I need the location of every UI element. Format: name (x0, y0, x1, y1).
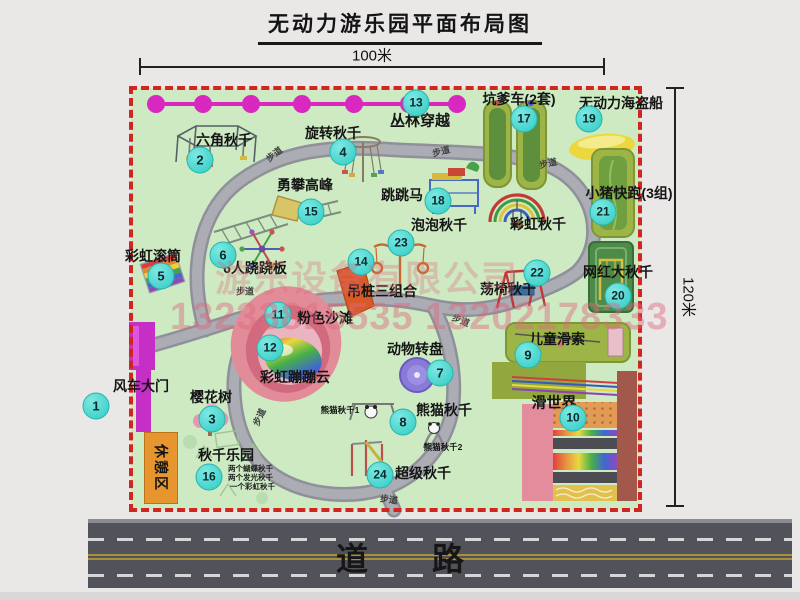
facility-1-label: 风车大门 (113, 376, 169, 396)
facility-7-label: 动物转盘 (387, 339, 443, 359)
right-dimension-tick-bottom (666, 505, 684, 507)
facility-12-label: 彩虹蹦蹦云 (260, 367, 330, 387)
facility-16-label: 秋千乐园 (198, 445, 254, 465)
facility-4-label: 旋转秋千 (305, 123, 361, 143)
facility-12-marker: 12 (257, 335, 284, 362)
facility-20-label: 网红大秋千 (583, 262, 653, 282)
facility-22-marker: 22 (524, 260, 551, 287)
park-layout-screenshot: 无动力游乐园平面布局图 100米 120米 游乐设备有限公司 132338155… (0, 0, 800, 600)
facility-8-marker: 8 (390, 409, 417, 436)
facility-24-label: 超级秋千 (395, 463, 451, 483)
facility-11-label: 粉色沙滩 (297, 308, 353, 328)
facility-14-label: 吊桩三组合 (347, 281, 417, 301)
facility-23-label: 泡泡秋千 (411, 215, 467, 235)
facility-15-label: 勇攀高峰 (277, 175, 333, 195)
facility-9-marker: 9 (515, 342, 542, 369)
top-dimension-line (140, 66, 604, 68)
facility-4-marker: 4 (330, 139, 357, 166)
bottom-margin (0, 592, 800, 600)
rest-area-box: 休憩区 (144, 432, 178, 504)
facility-5-marker: 5 (148, 263, 175, 290)
facility-19-marker: 19 (576, 106, 603, 133)
panda-swing-1-label: 熊猫秋千1 (321, 404, 360, 416)
facility-3-label: 樱花树 (190, 387, 232, 407)
facility-7-marker: 7 (427, 360, 454, 387)
facility-17-marker: 17 (511, 106, 538, 133)
facility-1-marker: 1 (83, 393, 110, 420)
facility-8-label: 熊猫秋千 (416, 400, 472, 420)
facility-16-marker: 16 (196, 464, 223, 491)
road: 道 路 (88, 519, 792, 588)
rainbow-swing-label: 彩虹秋千 (510, 214, 566, 234)
swing-note-3: 一个彩虹秋千 (230, 481, 275, 492)
page-title: 无动力游乐园平面布局图 (258, 8, 542, 45)
road-label-char-2: 路 (432, 534, 464, 580)
facility-5-label: 彩虹滚筒 (125, 246, 181, 266)
height-dimension-label: 120米 (679, 277, 700, 317)
facility-13-marker: 13 (403, 90, 430, 117)
facility-20-marker: 20 (605, 283, 632, 310)
facility-10-marker: 10 (560, 405, 587, 432)
footpath-label-7: 步道 (379, 491, 399, 506)
facility-24-marker: 24 (367, 462, 394, 489)
facility-6-marker: 6 (210, 242, 237, 269)
facility-15-marker: 15 (298, 199, 325, 226)
top-dimension-tick-right (603, 58, 605, 75)
width-dimension-label: 100米 (352, 45, 392, 66)
right-dimension-line (674, 88, 676, 507)
top-dimension-tick-left (139, 58, 141, 75)
right-dimension-tick-top (666, 87, 684, 89)
facility-23-marker: 23 (388, 230, 415, 257)
rest-area-label: 休憩区 (151, 444, 171, 492)
footpath-label-4: 步道 (236, 285, 254, 298)
facility-14-marker: 14 (348, 249, 375, 276)
facility-2-marker: 2 (187, 147, 214, 174)
facility-3-marker: 3 (199, 406, 226, 433)
panda-swing-2-label: 熊猫秋千2 (424, 441, 463, 453)
facility-18-label: 跳跳马 (381, 185, 423, 205)
facility-11-marker: 11 (265, 302, 292, 329)
facility-18-marker: 18 (425, 188, 452, 215)
road-label-char-1: 道 (336, 534, 368, 580)
facility-21-marker: 21 (590, 199, 617, 226)
